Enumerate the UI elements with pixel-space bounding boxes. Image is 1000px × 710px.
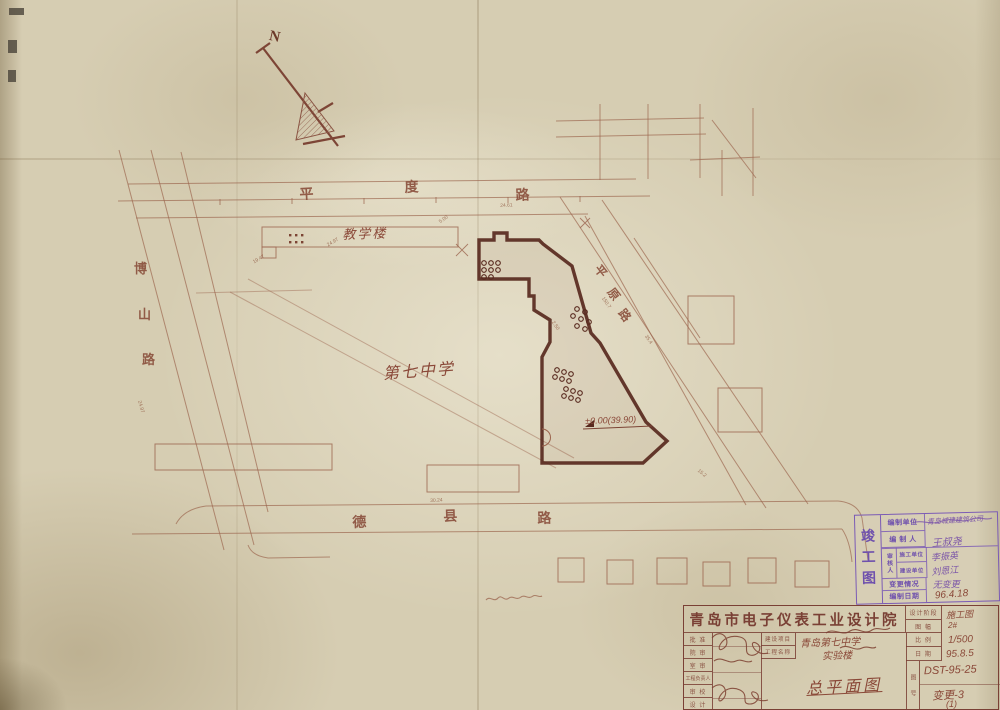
stage-label: 设计阶段 [906,606,942,620]
title-block: 青岛市电子仪表工业设计院 设计阶段 施工图 图 幅 2# 批 准 院 审 室 审… [683,605,999,710]
drawing-title: 总平面图 [783,665,905,705]
teaching-building-label: 教学楼 [342,222,388,243]
stamp-author-label: 编 制 人 [881,531,925,548]
scanned-site-plan: N 平 度 路 博 山 路 德 县 路 平 原 路 教学楼 第七中学 ±0.00… [0,0,1000,710]
dimension-text: 30.24 [430,497,443,504]
stamp-date-label: 编制日期 [883,590,927,603]
scale-label: 比 例 [906,633,942,647]
school-name-label: 第七中学 [382,355,456,384]
street-name-boshan-char: 山 [138,304,151,323]
date-label: 日 期 [906,647,942,661]
stamp-owner-label: 建设单位 [897,562,927,579]
stamp-review-label: 审核人 [882,548,898,579]
as-built-stamp: 竣工图 编制单位 青岛城建建筑公司 编 制 人 王叔尧 审核人 施工单位 李振英… [854,511,1000,604]
check-label: 审 校 [684,685,713,698]
approve-label: 批 准 [684,633,713,646]
stamp-unit-label: 编制单位 [881,514,925,532]
street-name-dexian-char: 路 [537,508,552,528]
office-review-label: 室 审 [684,659,713,672]
street-name-dexian-char: 德 [352,512,367,532]
level-mark-label: ±0.00(39.90) [585,414,636,426]
institute-name: 青岛市电子仪表工业设计院 [684,606,906,633]
as-built-stamp-side-label: 竣工图 [855,515,883,604]
new-building-outline [479,233,667,463]
scale-value: 1/500 [948,633,996,648]
design-label: 设 计 [684,698,713,710]
sheet-value: 2# [948,621,996,633]
street-name-boshan-char: 路 [142,349,155,368]
street-name-boshan-char: 博 [134,258,147,277]
stamp-builder-label: 施工单位 [897,547,927,563]
stamp-change-label: 变更情况 [883,578,927,591]
street-name-dexian-char: 县 [443,506,458,526]
street-name-pingdu-char: 度 [404,176,419,197]
illegible-scribble [486,595,542,600]
stage-value: 施工图 [946,606,999,622]
work-name-label: 工程名称 [761,646,796,659]
sheet-label: 图 幅 [906,620,942,633]
date-value: 95.8.5 [946,647,997,663]
work-name-value: 实验楼 [822,645,902,661]
street-lines [118,104,868,562]
institute-review-label: 院 审 [684,646,713,659]
north-arrow-icon [256,43,345,146]
project-lead-label: 工程负责人 [684,672,713,685]
figure-number-label: 图 号 [906,661,920,710]
street-name-pingdu-char: 路 [515,184,530,205]
figure-number-value: DST-95-25 [924,663,999,684]
change-number-sub: (1) [946,699,986,710]
street-name-pingdu-char: 平 [299,183,314,204]
project-label: 建设项目 [761,633,796,646]
dimension-text: 24.61 [500,202,513,209]
